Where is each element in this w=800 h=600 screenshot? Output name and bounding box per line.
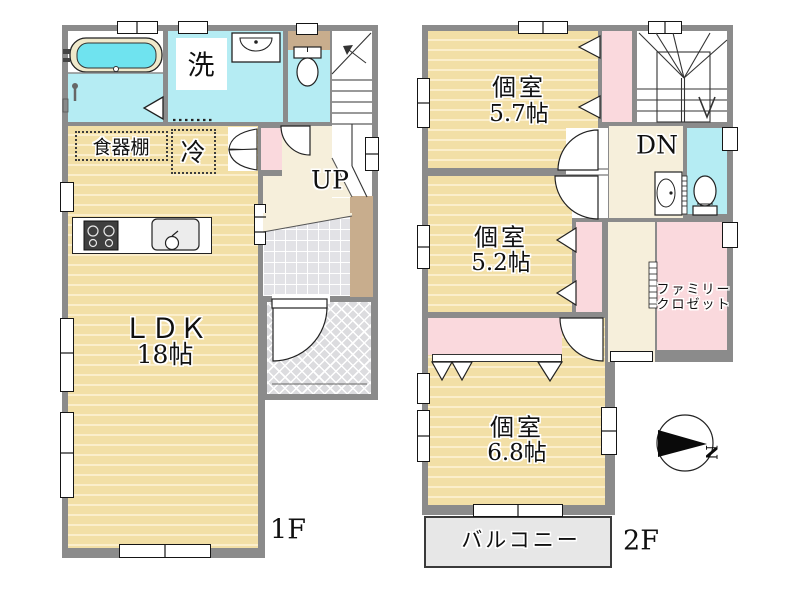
bathtub-icon bbox=[63, 38, 162, 72]
compass-icon: N bbox=[657, 415, 721, 471]
family-closet-label-2: クロゼット bbox=[656, 294, 731, 313]
entry-door-icon bbox=[272, 299, 327, 361]
closet-68-doors bbox=[432, 362, 562, 381]
toilet-2f-icon bbox=[693, 176, 717, 215]
stairs-down-icon bbox=[637, 33, 727, 122]
kitchen-sink-icon bbox=[152, 219, 199, 250]
stairs-up-label: UP bbox=[311, 166, 349, 195]
room52-size-label: 5.2帖 bbox=[471, 243, 531, 277]
stairs-dn-label: DN bbox=[636, 131, 678, 160]
laundry-label: 洗 bbox=[188, 44, 215, 83]
laundry-sink-icon bbox=[232, 33, 280, 62]
bath-door-icon bbox=[144, 97, 163, 119]
shower-icon bbox=[63, 83, 78, 112]
door-arc-hall-1f bbox=[281, 126, 310, 155]
floorplan-canvas: N 洗 食器棚 冷 UP ＬＤＫ 18帖 1F 個室 5.7帖 DN 個室 5.… bbox=[0, 0, 800, 600]
floor2-label: 2F bbox=[623, 526, 659, 557]
compass-north-label: N bbox=[702, 445, 721, 460]
room57-size-label: 5.7帖 bbox=[489, 94, 549, 128]
closet-52-doors bbox=[557, 228, 576, 305]
washbasin-icon bbox=[655, 172, 682, 215]
double-door-closet-1f bbox=[229, 129, 257, 170]
cupboard-label: 食器棚 bbox=[92, 133, 149, 160]
closet-57-doors bbox=[579, 36, 600, 118]
fridge-label: 冷 bbox=[180, 133, 205, 169]
door-arc-68 bbox=[560, 318, 603, 361]
balcony-label: バルコニー bbox=[461, 524, 581, 554]
floor1-label: 1F bbox=[270, 515, 306, 546]
toilet-1f-icon bbox=[294, 47, 321, 86]
ldk-size-label: 18帖 bbox=[137, 335, 194, 371]
accordion-door-toilet2f bbox=[682, 176, 687, 214]
doors-57-52 bbox=[555, 130, 608, 219]
window-ticks-1f bbox=[60, 21, 379, 558]
stove-icon bbox=[84, 221, 118, 250]
room68-size-label: 6.8帖 bbox=[487, 433, 547, 467]
